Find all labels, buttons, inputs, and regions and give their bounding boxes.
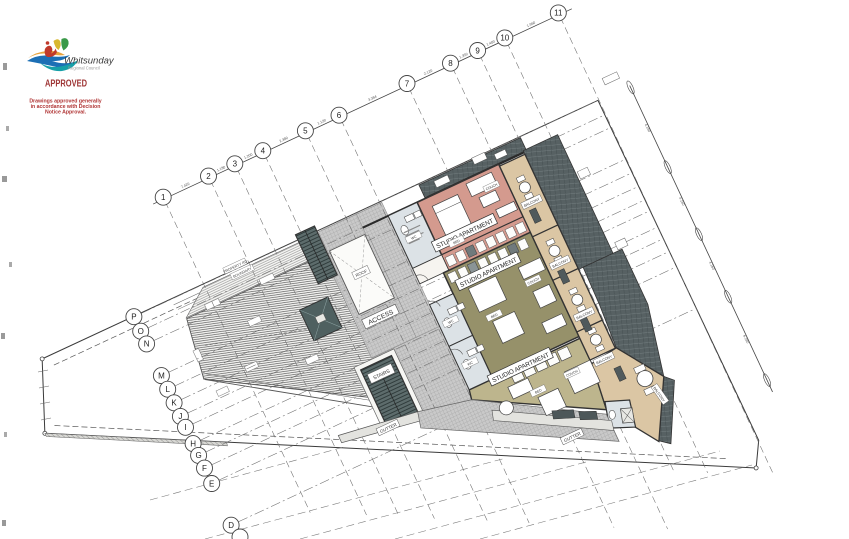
svg-text:N: N [144, 340, 150, 349]
svg-text:11: 11 [554, 9, 563, 18]
svg-text:F: F [202, 464, 207, 473]
svg-text:10: 10 [500, 34, 509, 43]
svg-text:K: K [171, 399, 177, 408]
svg-text:1: 1 [161, 193, 166, 202]
svg-text:O: O [138, 327, 144, 336]
svg-text:8: 8 [448, 59, 453, 68]
svg-text:P: P [131, 313, 136, 322]
svg-text:H: H [190, 439, 196, 448]
svg-text:E: E [209, 479, 214, 488]
svg-text:APPROVED: APPROVED [45, 79, 87, 90]
svg-text:2: 2 [206, 172, 211, 181]
svg-text:Notice Approval.: Notice Approval. [45, 110, 87, 116]
svg-text:I: I [184, 423, 186, 432]
svg-text:M: M [158, 371, 165, 380]
svg-text:9: 9 [475, 46, 480, 55]
svg-text:Regional Council: Regional Council [68, 66, 100, 71]
svg-text:G: G [195, 451, 201, 460]
svg-text:6: 6 [337, 111, 342, 120]
svg-text:7: 7 [405, 79, 410, 88]
svg-text:L: L [165, 385, 170, 394]
svg-text:4: 4 [261, 147, 266, 156]
svg-text:3: 3 [233, 160, 238, 169]
svg-text:5: 5 [303, 127, 308, 136]
svg-text:D: D [228, 521, 234, 530]
